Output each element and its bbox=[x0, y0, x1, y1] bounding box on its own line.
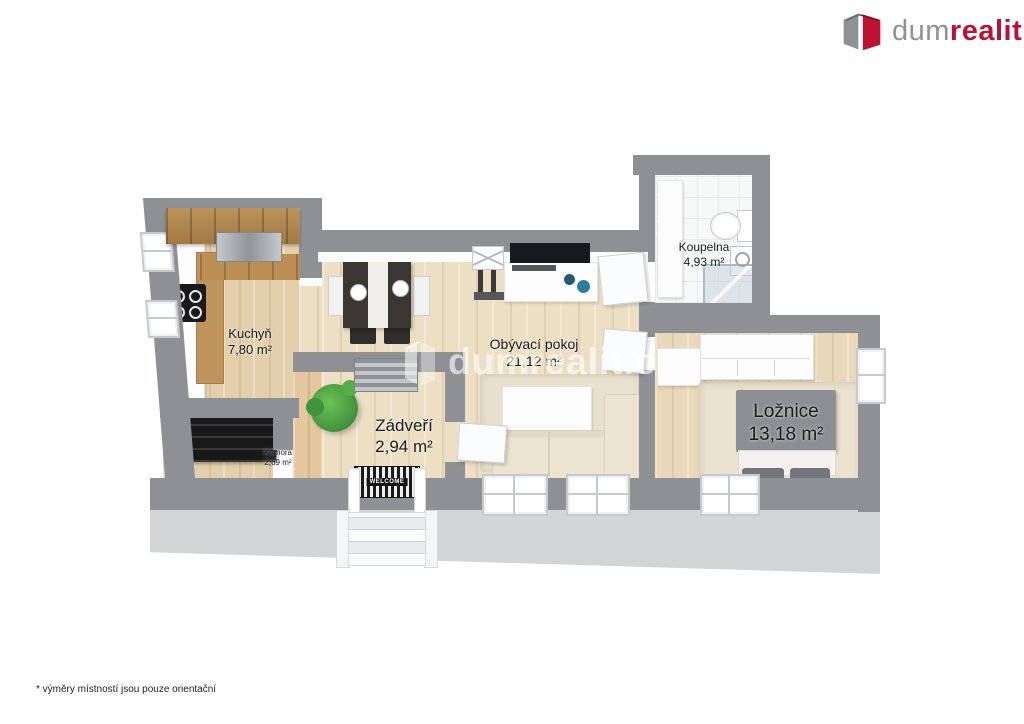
stairs-stringer-right bbox=[424, 510, 438, 568]
toilet-bowl bbox=[710, 212, 741, 240]
brand-logo-text: dumrealit.cz bbox=[892, 15, 1024, 48]
entry-door-jamb-right bbox=[414, 468, 426, 514]
welcome-mat: WELCOME bbox=[354, 466, 420, 498]
room-area: 2,69 m² bbox=[264, 458, 292, 468]
plate bbox=[392, 280, 409, 297]
wall-bath-left-upper bbox=[639, 175, 655, 258]
footer-disclaimer: * výměry místností jsou pouze orientační bbox=[36, 684, 216, 695]
wall-komora-right bbox=[273, 398, 293, 450]
wall-living-right-c bbox=[639, 370, 655, 480]
window-bedroom-bottom bbox=[700, 474, 760, 516]
room-area: 21,12 m² bbox=[490, 353, 579, 370]
room-name: Koupelna bbox=[679, 240, 730, 255]
room-name: Kuchyň bbox=[228, 326, 272, 342]
wall-bath-bottom bbox=[639, 303, 770, 333]
room-name: Obývací pokoj bbox=[490, 336, 579, 353]
dresser-drawer-line bbox=[702, 358, 810, 359]
room-name: Ložnice bbox=[749, 400, 824, 423]
window-left-lower bbox=[145, 300, 180, 338]
room-name: Komora bbox=[264, 448, 292, 458]
decor-stand-leg bbox=[478, 268, 483, 294]
tv bbox=[510, 243, 590, 263]
room-label-loznice: Ložnice 13,18 m² bbox=[749, 400, 824, 446]
dining-chair-bottom bbox=[350, 326, 376, 344]
brand-text-accent: realit bbox=[950, 15, 1022, 47]
dining-chair-right bbox=[413, 276, 430, 316]
bath-cabinet bbox=[657, 180, 683, 298]
wall-bath-top bbox=[633, 155, 770, 175]
bedroom-cabinet-small bbox=[657, 348, 701, 386]
window-living-bottom-1 bbox=[482, 474, 548, 516]
decor-stand-leg bbox=[491, 268, 496, 294]
bedroom-dresser bbox=[700, 334, 814, 380]
wall-zadveri-right-stub bbox=[445, 462, 465, 478]
door-bathroom bbox=[598, 252, 649, 307]
room-name: Zádveří bbox=[375, 416, 433, 437]
wall-zadveri-right-upper bbox=[445, 372, 465, 422]
brand-box-icon bbox=[840, 8, 884, 54]
brand-logo: dumrealit.cz bbox=[840, 8, 1024, 54]
dresser-divider bbox=[737, 360, 738, 376]
sofa bbox=[492, 430, 608, 480]
table-runner bbox=[368, 262, 388, 328]
room-label-zadveri: Zádveří 2,94 m² bbox=[375, 416, 433, 457]
sofa-chaise bbox=[604, 394, 644, 480]
living-floor-pass bbox=[299, 278, 322, 352]
room-label-koupelna: Koupelna 4,93 m² bbox=[679, 240, 730, 269]
plate bbox=[350, 284, 367, 301]
tv-bench-electronics bbox=[512, 265, 556, 271]
floor-plan-canvas: WELCOME bbox=[0, 0, 1024, 724]
cooktop-burner bbox=[189, 306, 202, 319]
coffee-table bbox=[502, 386, 592, 434]
room-area: 4,93 m² bbox=[679, 255, 730, 270]
door-bedroom bbox=[600, 328, 647, 374]
dining-chair-bottom bbox=[384, 326, 410, 344]
bath-sink-bowl bbox=[735, 252, 750, 267]
welcome-mat-label: WELCOME bbox=[367, 478, 408, 486]
wall-kitchen-living-stub-face bbox=[299, 278, 322, 286]
window-living-bottom-2 bbox=[566, 474, 630, 516]
window-bedroom-right bbox=[856, 348, 886, 404]
kitchen-stove bbox=[216, 232, 282, 262]
entry-door-jamb-left bbox=[348, 468, 360, 514]
entry-radiator bbox=[354, 358, 418, 392]
decor-bowl-blue bbox=[577, 280, 590, 293]
room-label-komora: Komora 2,69 m² bbox=[264, 448, 292, 468]
cooktop-burner bbox=[189, 290, 202, 303]
room-label-obyvaci: Obývací pokoj 21,12 m² bbox=[490, 336, 579, 370]
sofa-cushion-line bbox=[548, 432, 550, 476]
plant-leaf bbox=[306, 398, 324, 416]
room-label-kuchyn: Kuchyň 7,80 m² bbox=[228, 326, 272, 358]
room-area: 13,18 m² bbox=[749, 423, 824, 446]
brand-text-prefix: dum bbox=[892, 15, 950, 47]
wall-bottom-front-face bbox=[150, 510, 880, 574]
stairs-steps bbox=[348, 512, 426, 566]
dresser-divider bbox=[774, 360, 775, 376]
room-area: 2,94 m² bbox=[375, 437, 433, 458]
door-zadveri-living bbox=[457, 422, 508, 463]
room-area: 7,80 m² bbox=[228, 342, 272, 358]
decor-stand bbox=[472, 246, 504, 270]
decor-stand-base bbox=[474, 292, 504, 300]
decor-bowl-blue bbox=[564, 274, 575, 285]
shower bbox=[703, 264, 757, 307]
